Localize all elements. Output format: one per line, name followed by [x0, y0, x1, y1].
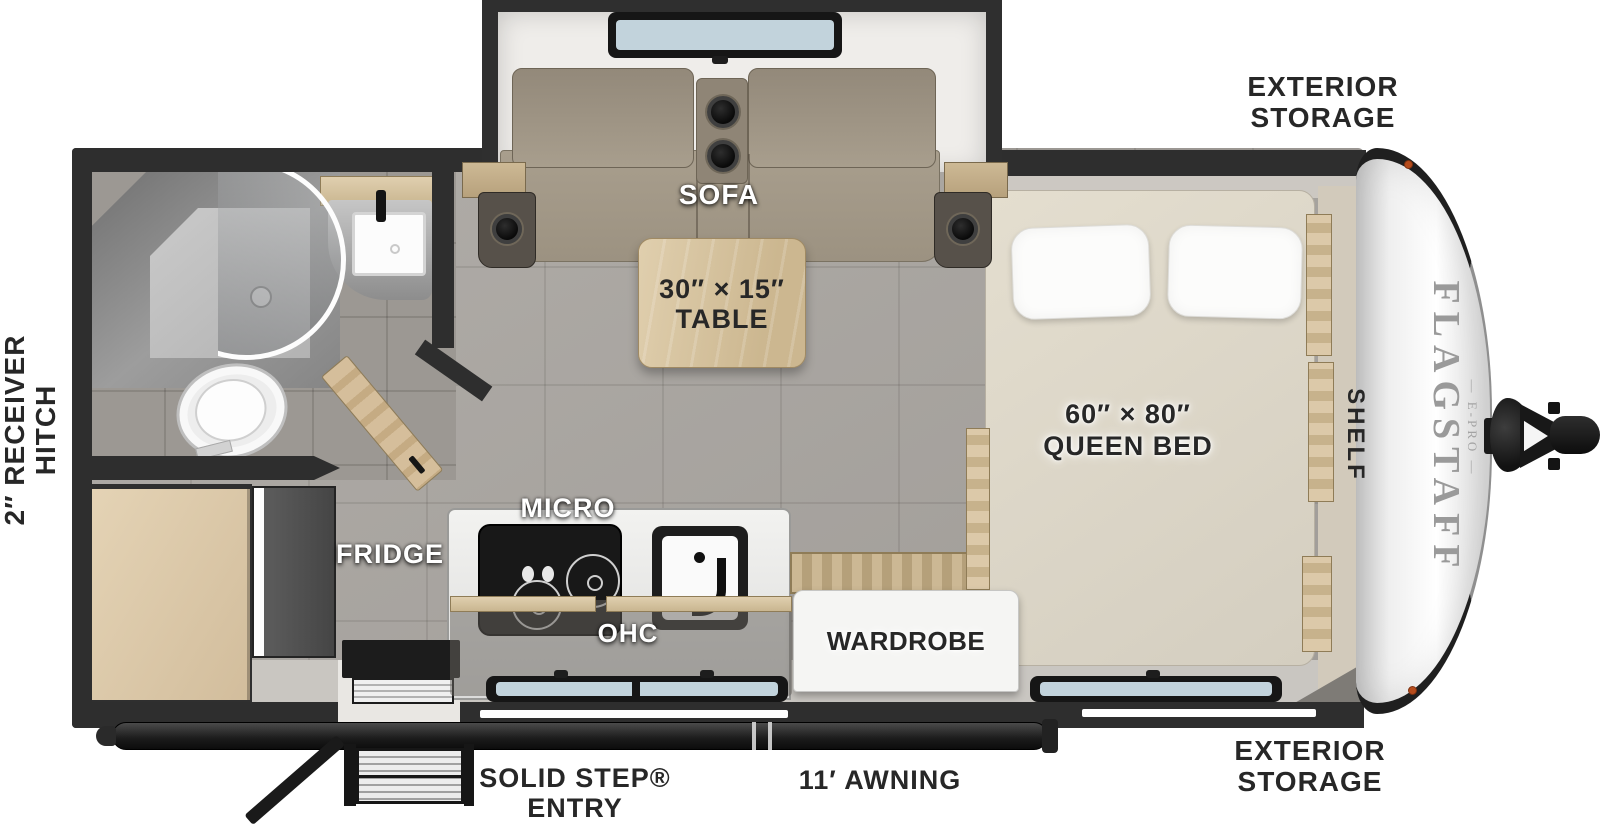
window-latch [554, 670, 568, 678]
bathroom-faucet [376, 190, 386, 222]
kitchen-window-mullion [632, 682, 640, 696]
awning-roller [112, 722, 1048, 750]
fridge-label: FRIDGE [280, 540, 500, 570]
brand-model: — E-PRO — [1464, 330, 1480, 526]
wardrobe-label: WARDROBE [827, 627, 986, 656]
door-handle [408, 455, 425, 474]
wall-top-left [72, 148, 508, 172]
table-label: 30″ × 15″ TABLE [639, 275, 805, 334]
label-line: SOLID STEP® [425, 764, 725, 794]
window-latch [1146, 670, 1160, 678]
sofa-backrest [512, 68, 694, 168]
interior-entry-tread [352, 678, 454, 704]
pillow [1010, 224, 1151, 321]
dinette-table: 30″ × 15″ TABLE [638, 238, 806, 368]
table-size-label: 30″ × 15″ [639, 275, 805, 305]
bathroom-wall-bottom [90, 456, 314, 480]
marker-light [1404, 160, 1413, 169]
cooktop-knob [522, 566, 534, 582]
awning-joint [752, 722, 756, 750]
label-line: 60″ × 80″ [978, 398, 1278, 430]
solid-step-entry-label: SOLID STEP® ENTRY [425, 764, 725, 823]
overhead-cabinet-trim [450, 596, 596, 612]
cupholder [492, 214, 522, 244]
label-line: ENTRY [425, 794, 725, 824]
exterior-storage-label-bottom: EXTERIOR STORAGE [1165, 736, 1455, 798]
cupholder [707, 96, 739, 128]
toilet-lid [188, 371, 273, 449]
bathroom-wall-right [432, 156, 454, 348]
label-line: EXTERIOR [1165, 736, 1455, 767]
marker-light [1408, 686, 1417, 695]
label-line: 2″ RECEIVER [0, 290, 31, 570]
awning-bracket [1042, 719, 1058, 753]
queen-bed-label: 60″ × 80″ QUEEN BED [978, 398, 1278, 463]
bedroom-window-glass [1040, 682, 1272, 696]
wall-top-right [984, 150, 1366, 176]
cooktop-knob [542, 566, 554, 582]
step-rail [344, 744, 356, 806]
shelf-label: SHELF [1338, 375, 1368, 495]
wall-rear [72, 148, 92, 728]
cupholder [707, 140, 739, 172]
slideout-window-glass [616, 20, 834, 50]
shelf-plank [1308, 362, 1334, 502]
brand-logo: FLAGSTAFF [1422, 228, 1470, 628]
awning-rail-highlight [1082, 709, 1316, 717]
receiver-hitch-label: 2″ RECEIVER HITCH [0, 290, 66, 570]
awning-joint [768, 722, 772, 750]
sofa-label: SOFA [609, 180, 829, 211]
sofa-backrest [748, 68, 936, 168]
awning-end-cap [96, 726, 116, 746]
overhead-cabinet-label: OHC [518, 619, 738, 648]
sink-drain [390, 244, 400, 254]
microwave-label: MICRO [458, 494, 678, 524]
overhead-cabinet-trim [606, 596, 792, 612]
shelf-plank [1302, 556, 1332, 652]
label-line: HITCH [31, 290, 62, 570]
awning-rail-highlight [480, 710, 788, 718]
bed-platform-slats [790, 552, 990, 594]
wardrobe: WARDROBE [793, 590, 1019, 692]
rear-cabinet [80, 484, 252, 702]
hitch-jack [1548, 458, 1560, 470]
label-line: QUEEN BED [978, 430, 1278, 462]
bathroom-sink [352, 212, 426, 276]
floorplan-canvas: WARDROBE 30″ × 15″ TABLE FLAGSTAFF — E-P… [0, 0, 1600, 832]
awning-label: 11′ AWNING [730, 766, 1030, 796]
label-line: EXTERIOR [1178, 72, 1468, 103]
hitch-coupler [1550, 416, 1600, 454]
window-latch [700, 670, 714, 678]
interior-entry-step [342, 640, 460, 678]
exterior-storage-label-top: EXTERIOR STORAGE [1178, 72, 1468, 134]
table-text-label: TABLE [639, 305, 805, 335]
label-line: STORAGE [1165, 767, 1455, 798]
cupholder [948, 214, 978, 244]
window-latch [712, 56, 728, 64]
shelf-plank [1306, 214, 1332, 356]
label-line: STORAGE [1178, 103, 1468, 134]
kitchen-faucet-handle [694, 552, 705, 563]
hitch-jack [1548, 402, 1560, 414]
pillow [1167, 224, 1303, 319]
refrigerator [252, 486, 336, 658]
